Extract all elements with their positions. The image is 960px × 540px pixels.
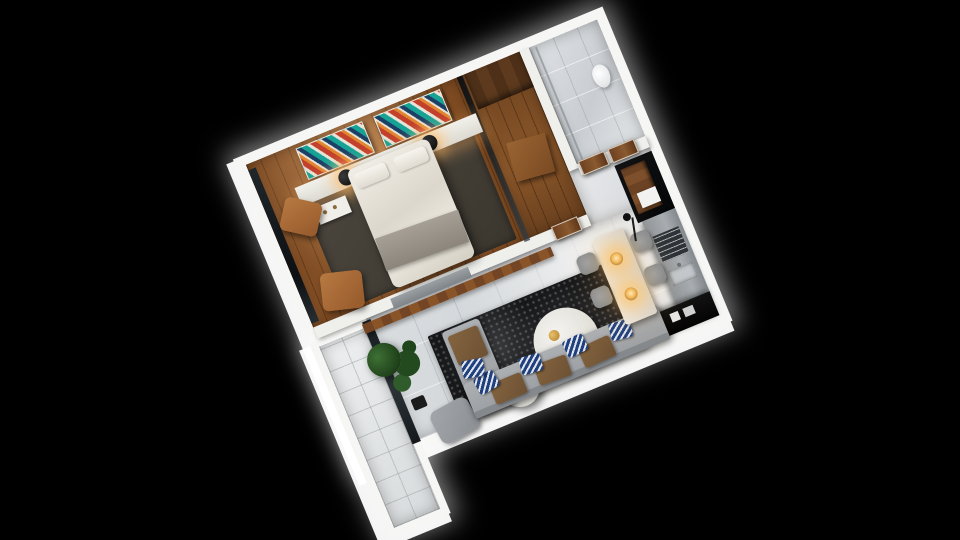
apartment-floorplan bbox=[233, 6, 763, 540]
lounge-chair-bottom bbox=[319, 269, 365, 312]
black-backdrop bbox=[0, 0, 960, 540]
